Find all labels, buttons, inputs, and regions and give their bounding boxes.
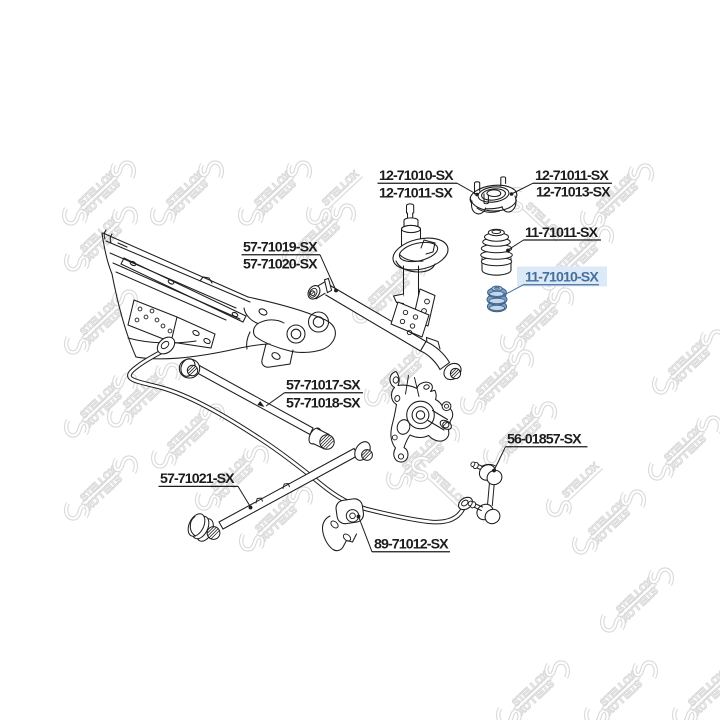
svg-text:11-71011-SX: 11-71011-SX xyxy=(525,225,599,241)
svg-text:56-01857-SX: 56-01857-SX xyxy=(507,432,582,448)
svg-text:57-71021-SX: 57-71021-SX xyxy=(160,471,235,487)
svg-text:12-71011-SX: 12-71011-SX xyxy=(535,168,609,184)
svg-text:11-71010-SX: 11-71010-SX xyxy=(525,270,599,286)
svg-text:57-71017-SX: 57-71017-SX xyxy=(286,378,361,394)
svg-text:57-71020-SX: 57-71020-SX xyxy=(243,257,318,273)
svg-text:12-71010-SX: 12-71010-SX xyxy=(379,168,454,184)
svg-text:89-71012-SX: 89-71012-SX xyxy=(374,537,449,553)
svg-text:12-71013-SX: 12-71013-SX xyxy=(536,185,611,201)
svg-text:57-71018-SX: 57-71018-SX xyxy=(286,396,361,412)
svg-text:12-71011-SX: 12-71011-SX xyxy=(379,186,453,202)
svg-text:57-71019-SX: 57-71019-SX xyxy=(243,240,318,256)
